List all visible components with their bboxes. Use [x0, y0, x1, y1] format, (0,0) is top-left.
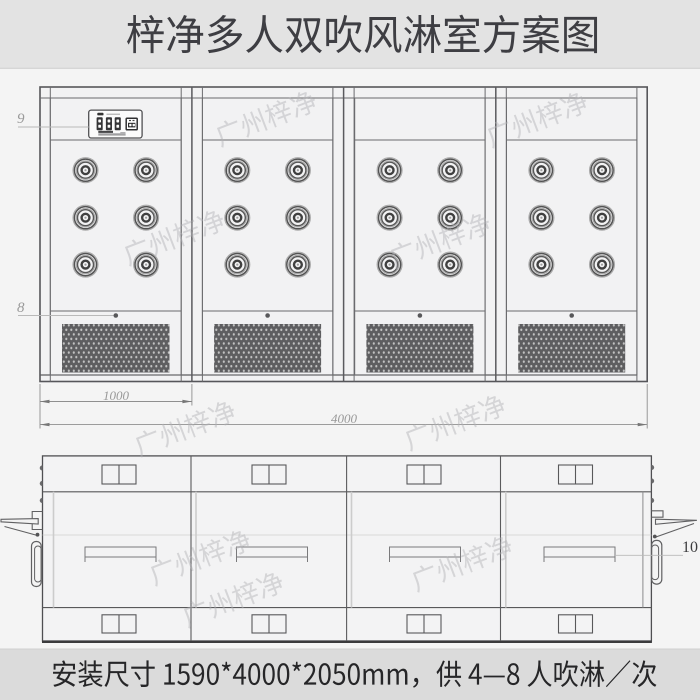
- svg-text:9: 9: [17, 111, 25, 127]
- svg-text:10: 10: [682, 539, 698, 556]
- svg-text:4000: 4000: [331, 411, 358, 426]
- svg-text:8: 8: [17, 300, 25, 316]
- svg-text:1000: 1000: [103, 388, 130, 403]
